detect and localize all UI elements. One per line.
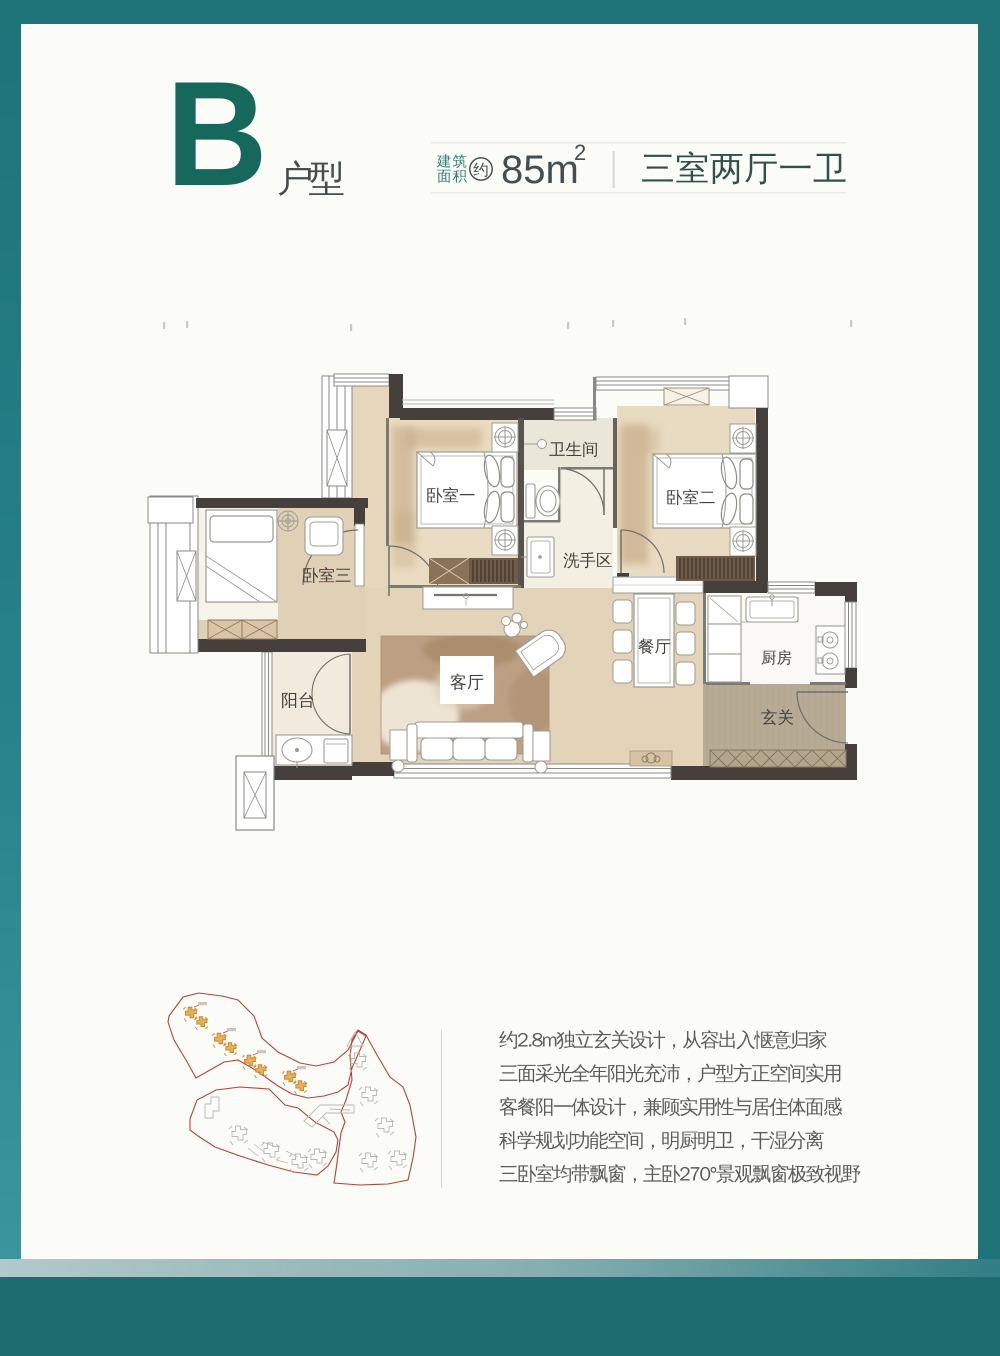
svg-text:85m: 85m [501,148,579,192]
svg-text:B: B [166,50,268,217]
svg-text:2: 2 [574,140,586,165]
